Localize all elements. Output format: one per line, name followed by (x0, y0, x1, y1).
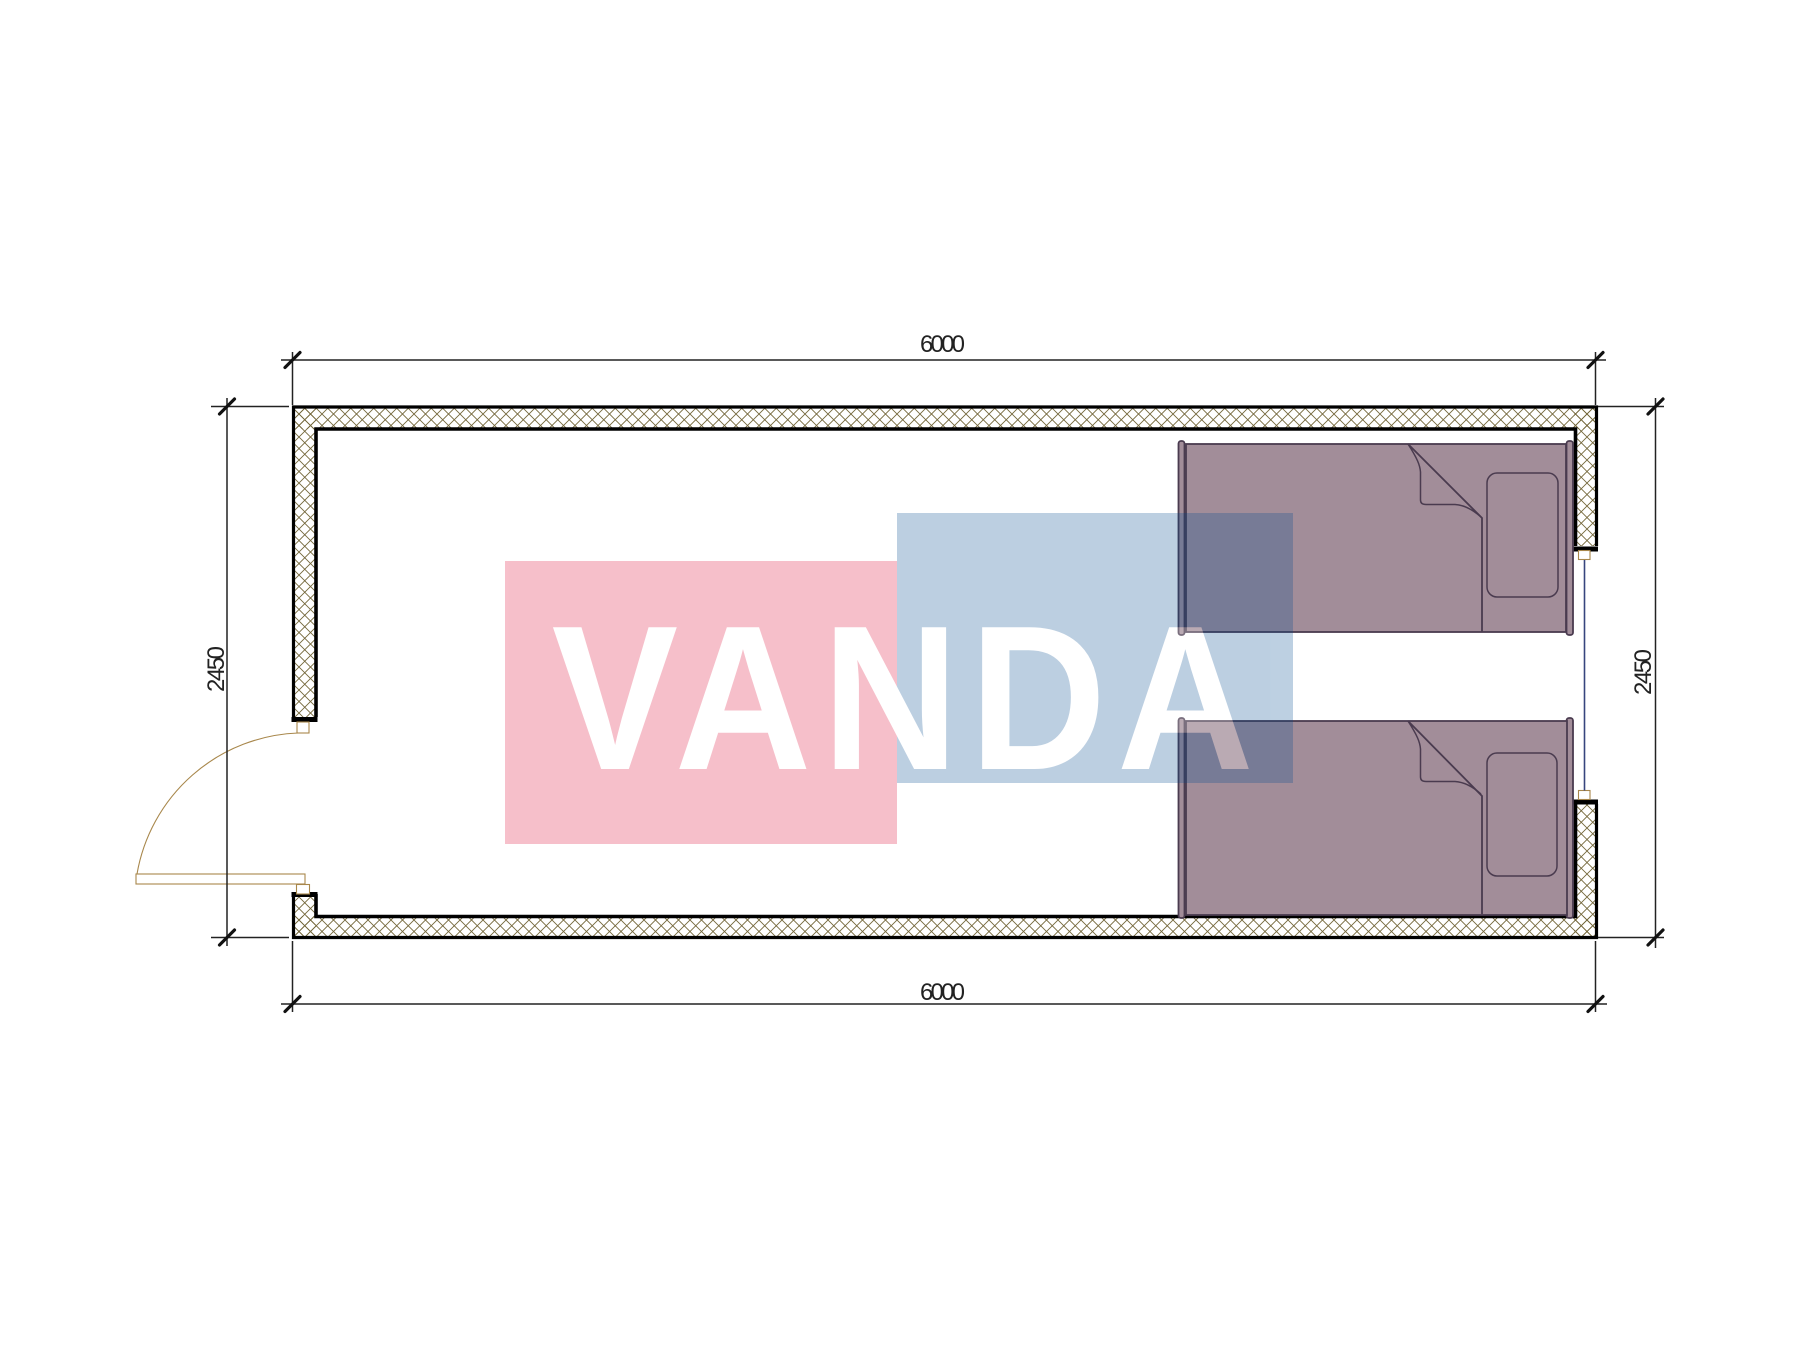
svg-text:2450: 2450 (1630, 649, 1657, 695)
svg-text:2450: 2450 (203, 646, 230, 692)
svg-text:VANDA: VANDA (552, 583, 1265, 813)
svg-text:6000: 6000 (920, 979, 965, 1006)
svg-text:6000: 6000 (920, 331, 965, 358)
